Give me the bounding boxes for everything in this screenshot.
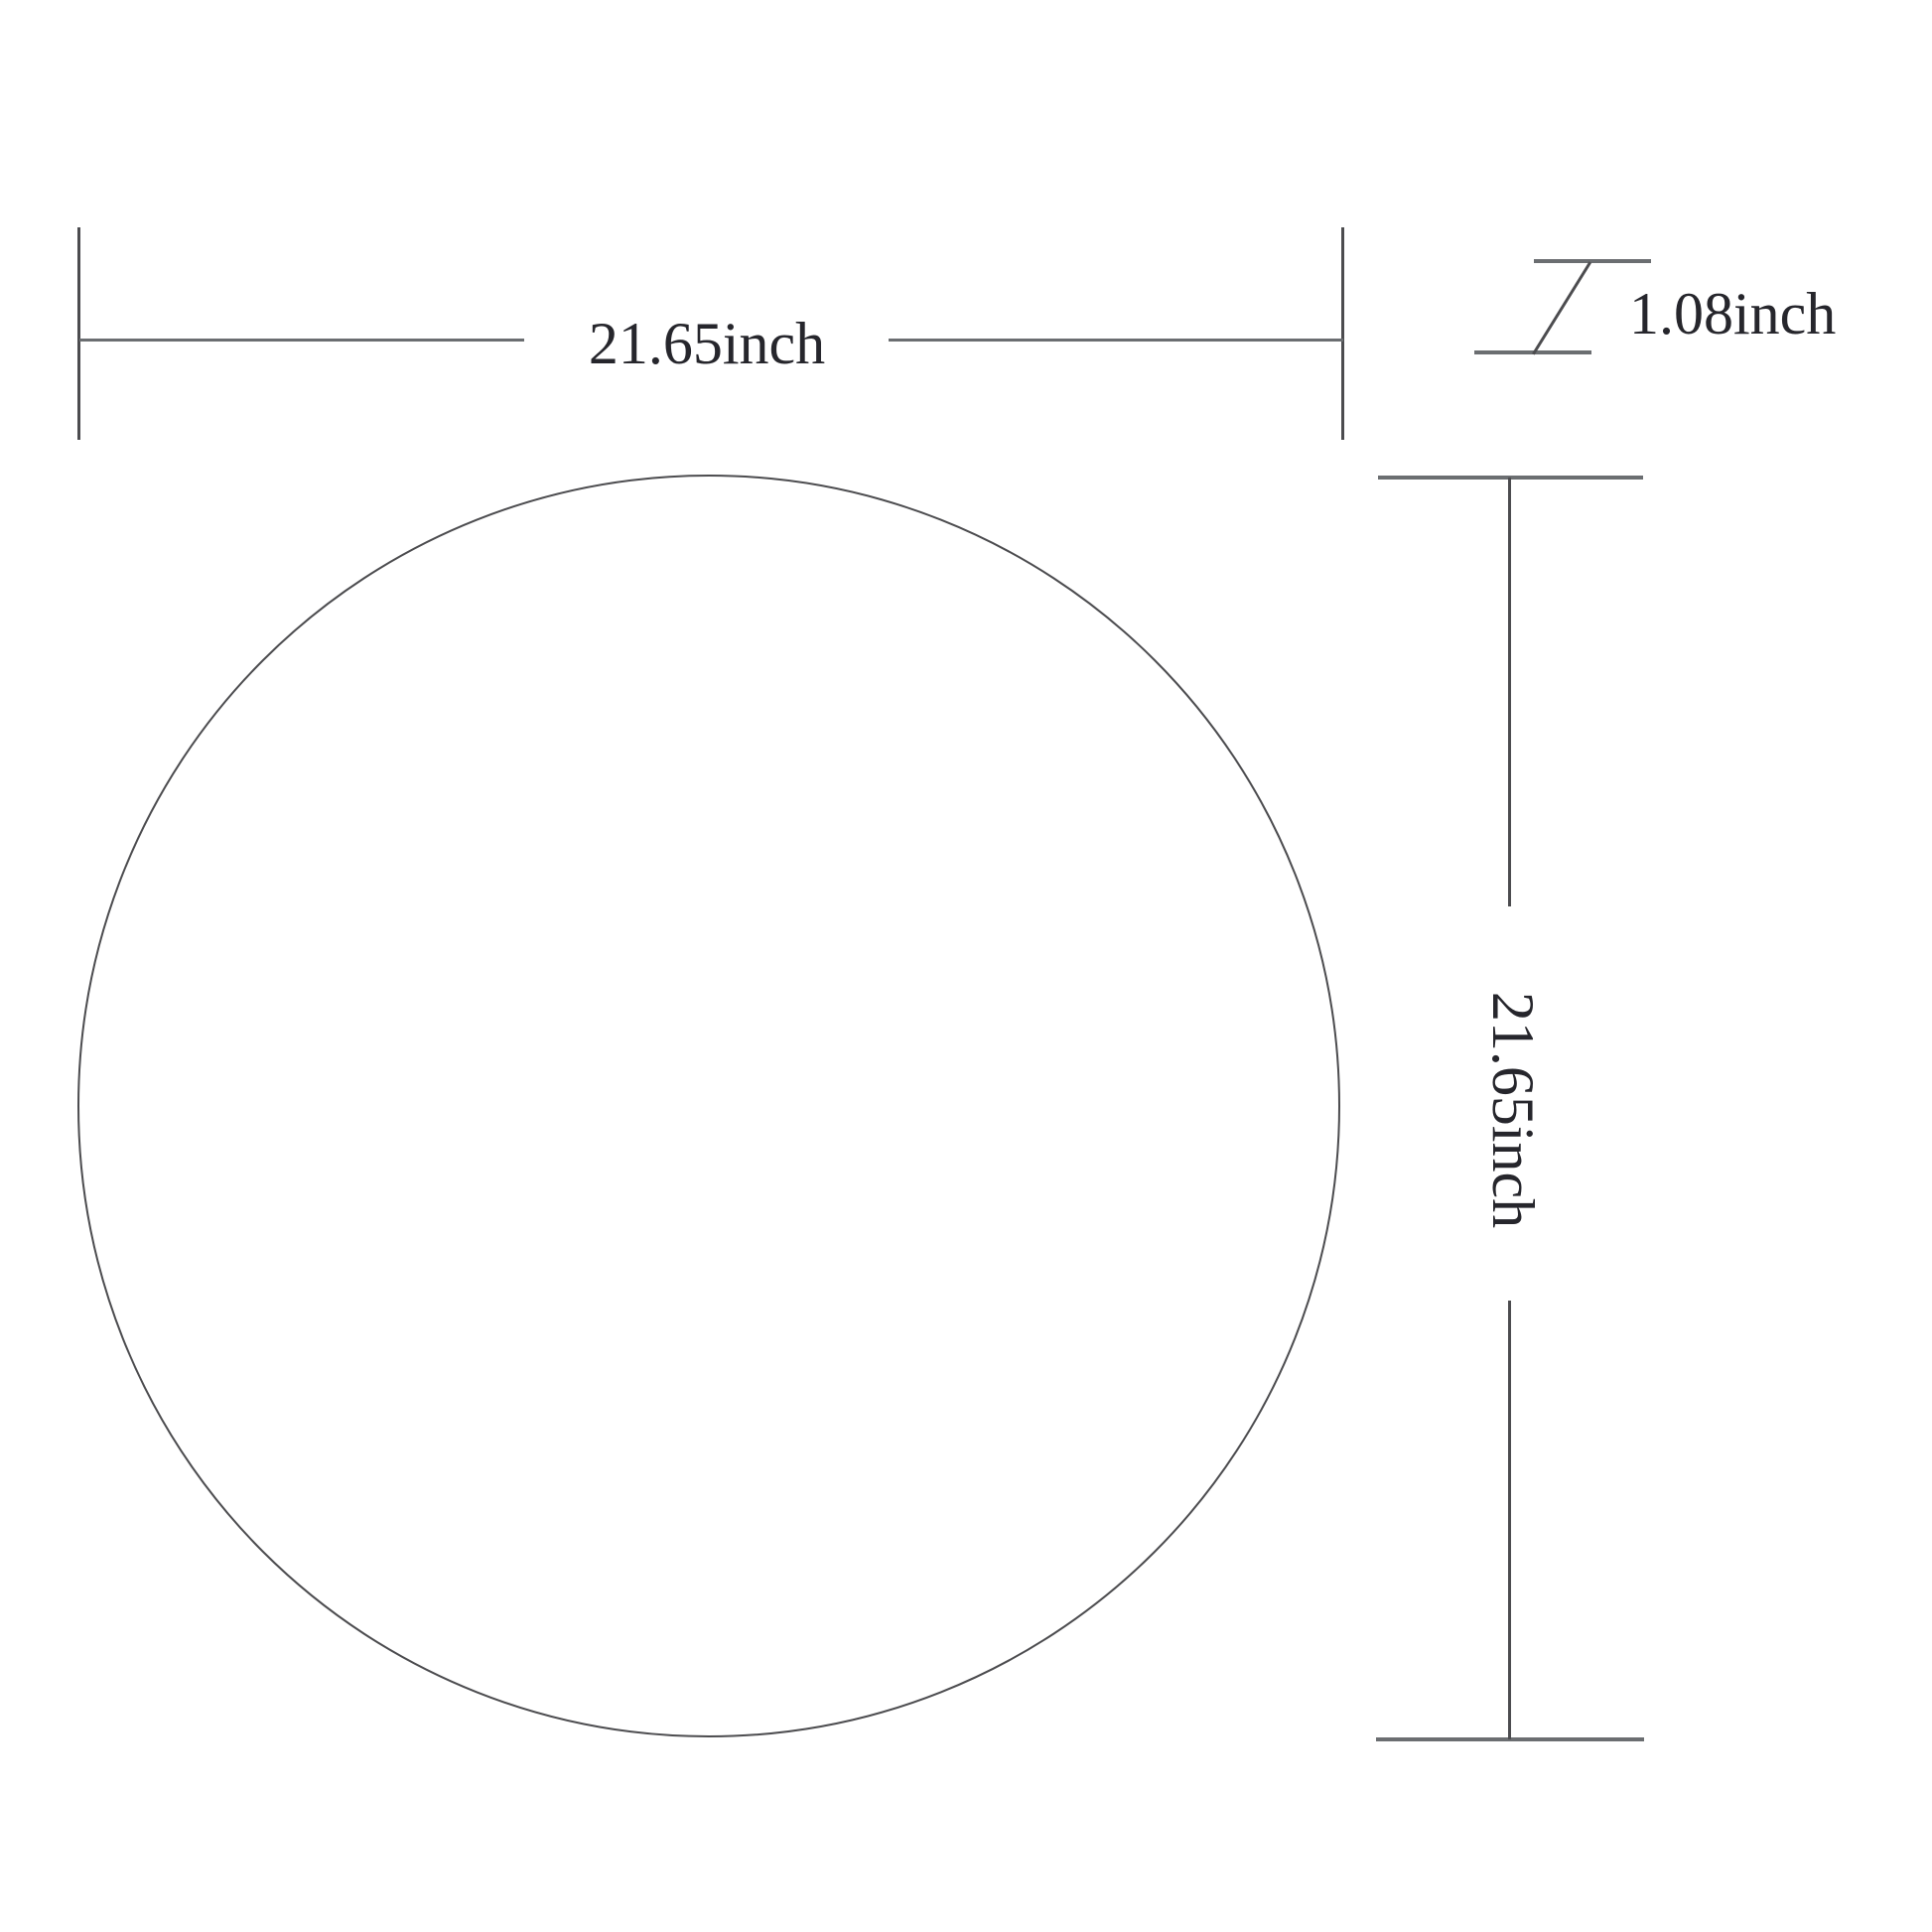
product-circle-outline: [77, 475, 1340, 1737]
thickness-dimension-label: 1.08inch: [1629, 284, 1836, 344]
width-dimension-line-left: [79, 339, 524, 342]
thickness-symbol-top-bar: [1534, 259, 1651, 263]
width-dimension-line-right: [889, 339, 1343, 342]
thickness-symbol-diagonal: [1532, 262, 1591, 355]
height-dimension-line-lower: [1508, 1301, 1511, 1739]
width-dimension-right-tick: [1341, 227, 1344, 440]
height-dimension-line-upper: [1508, 478, 1511, 906]
height-dimension-label: 21.65inch: [1483, 992, 1543, 1228]
width-dimension-left-tick: [77, 227, 80, 440]
width-dimension-label: 21.65inch: [589, 314, 825, 373]
dimension-diagram: 21.65inch 21.65inch 1.08inch: [0, 0, 1932, 1932]
